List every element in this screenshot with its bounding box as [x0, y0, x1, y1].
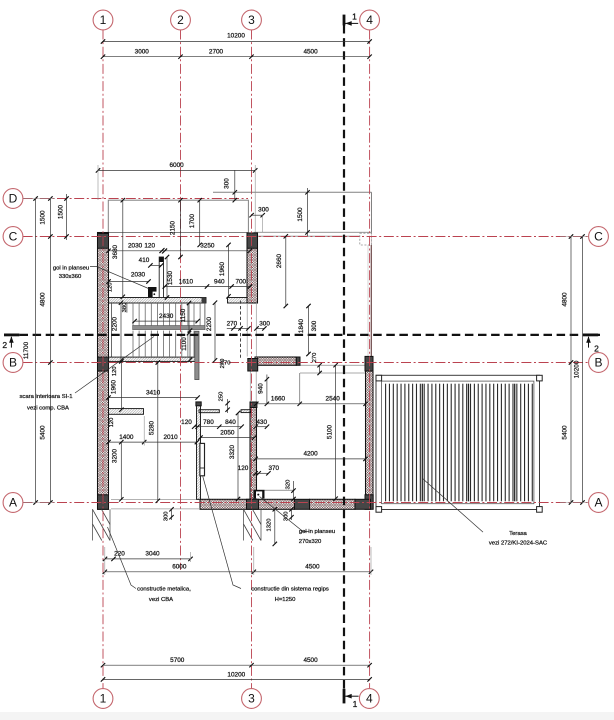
svg-text:2200: 2200	[112, 316, 119, 331]
svg-text:4200: 4200	[303, 451, 318, 458]
svg-text:5100: 5100	[326, 424, 333, 439]
svg-text:1660: 1660	[271, 396, 286, 403]
svg-text:3: 3	[248, 13, 255, 27]
svg-text:A: A	[594, 496, 602, 510]
svg-text:780: 780	[203, 419, 214, 426]
svg-text:10200: 10200	[227, 671, 245, 678]
svg-text:2: 2	[594, 344, 599, 354]
svg-text:gol in planseu: gol in planseu	[53, 265, 89, 271]
svg-text:270: 270	[312, 353, 318, 363]
svg-text:B: B	[594, 356, 602, 370]
svg-text:2150: 2150	[170, 220, 177, 235]
svg-text:2660: 2660	[276, 253, 283, 268]
svg-text:3680: 3680	[112, 244, 119, 259]
svg-text:2430: 2430	[159, 313, 174, 320]
svg-text:1320: 1320	[267, 519, 273, 532]
svg-text:410: 410	[139, 257, 150, 264]
svg-text:2: 2	[177, 13, 184, 27]
svg-text:4800: 4800	[562, 292, 569, 307]
svg-text:1500: 1500	[39, 210, 46, 225]
svg-text:1400: 1400	[119, 434, 134, 441]
svg-text:10200: 10200	[574, 360, 581, 378]
svg-text:1: 1	[352, 12, 357, 22]
svg-text:1500: 1500	[58, 204, 65, 219]
svg-text:2050: 2050	[220, 429, 235, 436]
svg-text:300: 300	[224, 178, 231, 189]
svg-text:3410: 3410	[146, 389, 161, 396]
svg-text:1: 1	[353, 699, 358, 709]
svg-text:120: 120	[144, 243, 155, 250]
svg-text:1530: 1530	[167, 270, 174, 285]
svg-text:700: 700	[235, 278, 246, 285]
svg-text:380: 380	[122, 303, 128, 313]
svg-text:270: 270	[227, 320, 238, 327]
svg-text:120: 120	[181, 419, 192, 426]
svg-text:1610: 1610	[179, 278, 194, 285]
svg-text:1500: 1500	[297, 207, 304, 222]
svg-text:2: 2	[2, 340, 7, 350]
svg-text:1840: 1840	[298, 318, 305, 333]
svg-text:4500: 4500	[303, 49, 318, 56]
svg-text:300: 300	[311, 320, 318, 331]
svg-text:1700: 1700	[189, 213, 196, 228]
svg-text:1960: 1960	[219, 261, 226, 276]
svg-text:1: 1	[100, 692, 107, 706]
svg-text:H=1250: H=1250	[275, 597, 297, 603]
svg-text:250: 250	[218, 392, 224, 402]
svg-text:940: 940	[257, 383, 264, 394]
svg-text:A: A	[9, 496, 17, 510]
svg-text:2540: 2540	[326, 396, 341, 403]
svg-text:120: 120	[112, 366, 118, 376]
svg-text:11700: 11700	[23, 341, 30, 359]
svg-text:3: 3	[248, 692, 255, 706]
svg-text:C: C	[594, 230, 603, 244]
svg-text:3320: 3320	[229, 444, 236, 459]
svg-text:300: 300	[259, 320, 270, 327]
svg-text:320: 320	[286, 480, 292, 490]
svg-text:4500: 4500	[303, 657, 318, 664]
svg-text:B: B	[9, 356, 17, 370]
svg-text:270x320: 270x320	[299, 539, 322, 545]
svg-text:4: 4	[366, 13, 373, 27]
svg-text:430: 430	[256, 419, 267, 426]
svg-text:3250: 3250	[200, 243, 215, 250]
svg-text:300: 300	[164, 511, 170, 521]
svg-text:5280: 5280	[148, 420, 155, 435]
svg-text:4: 4	[366, 692, 373, 706]
svg-text:1150: 1150	[180, 308, 187, 322]
svg-text:120: 120	[238, 465, 249, 472]
svg-text:3040: 3040	[145, 550, 160, 557]
svg-text:vezi 272/KI-2024-SAC: vezi 272/KI-2024-SAC	[489, 540, 548, 546]
svg-text:270: 270	[221, 361, 231, 367]
svg-text:2700: 2700	[209, 49, 224, 56]
svg-text:3200: 3200	[111, 448, 118, 463]
svg-text:5400: 5400	[39, 425, 46, 440]
svg-text:5400: 5400	[562, 425, 569, 440]
svg-text:370: 370	[268, 465, 279, 472]
svg-text:Terasa: Terasa	[509, 531, 527, 537]
svg-text:C: C	[9, 230, 18, 244]
svg-text:6000: 6000	[172, 564, 187, 571]
svg-text:2010: 2010	[163, 434, 178, 441]
svg-text:scara interioara SI-1: scara interioara SI-1	[19, 394, 72, 400]
svg-text:1100: 1100	[181, 337, 188, 351]
svg-text:vezi comp. CBA: vezi comp. CBA	[27, 406, 69, 412]
svg-text:4500: 4500	[305, 564, 320, 571]
svg-text:vezi CBA: vezi CBA	[149, 597, 173, 603]
svg-text:300: 300	[258, 207, 269, 214]
svg-text:840: 840	[225, 419, 236, 426]
svg-text:constructie metalica,: constructie metalica,	[137, 587, 191, 593]
svg-text:2030: 2030	[128, 243, 143, 250]
svg-text:120: 120	[109, 418, 115, 428]
svg-text:2030: 2030	[131, 271, 146, 278]
svg-text:D: D	[9, 192, 18, 206]
svg-text:120: 120	[108, 282, 114, 292]
svg-text:3000: 3000	[135, 49, 150, 56]
svg-text:1960: 1960	[111, 379, 118, 394]
svg-text:4800: 4800	[39, 292, 46, 307]
svg-text:constructie din sistema regips: constructie din sistema regips	[251, 587, 329, 593]
svg-text:6000: 6000	[169, 162, 184, 169]
svg-text:940: 940	[214, 278, 225, 285]
svg-text:1: 1	[100, 13, 107, 27]
svg-text:2200: 2200	[206, 316, 213, 331]
svg-text:10200: 10200	[227, 32, 245, 39]
svg-text:330x360: 330x360	[59, 274, 82, 280]
svg-text:5700: 5700	[170, 657, 185, 664]
svg-text:gol in planseu: gol in planseu	[299, 529, 335, 535]
